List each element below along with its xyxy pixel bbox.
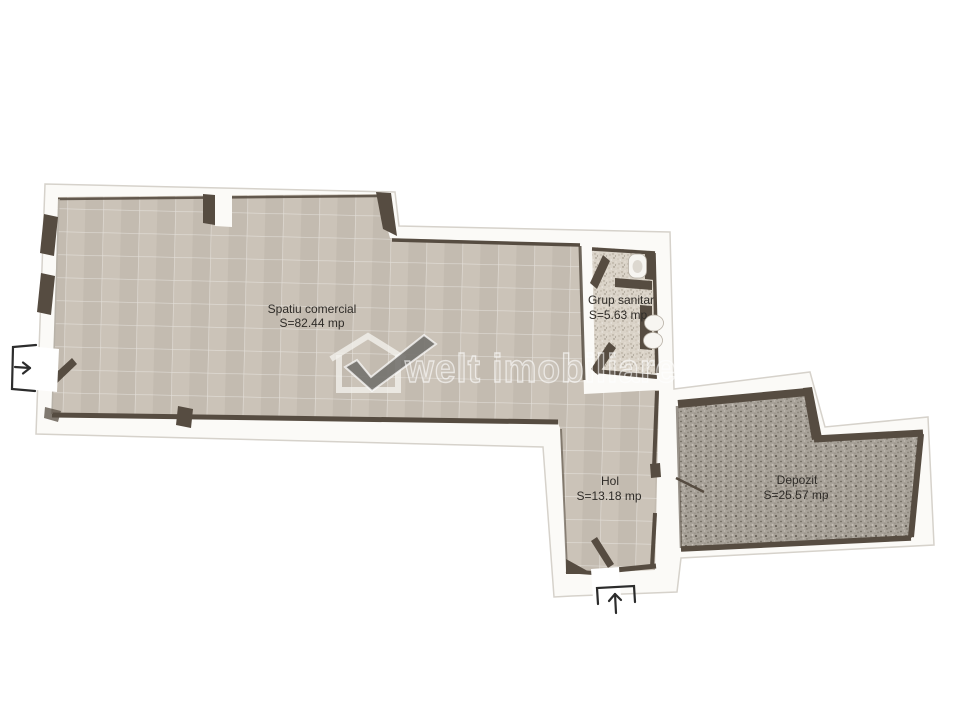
room-name-depozit: Depozit: [777, 473, 818, 487]
room-area-spatiu-comercial: S=82.44 mp: [279, 316, 344, 330]
room-area-hol: S=13.18 mp: [576, 489, 641, 503]
wall-stub-top-face: [203, 194, 215, 225]
toilet-bowl: [633, 260, 643, 273]
sink-basin-1-icon: [645, 315, 664, 331]
watermark-brand-text: welt imobiliare: [404, 347, 677, 391]
hol-doorway-jamb: [650, 463, 661, 478]
room-area-depozit: S=25.57 mp: [763, 488, 828, 502]
floor-plan-page: welt imobiliare Spatiu comercial S=82.44…: [0, 0, 965, 720]
wall-stub-top-white: [215, 194, 232, 227]
room-name-grup-sanitar: Grup sanitar: [588, 293, 654, 307]
room-area-grup-sanitar: S=5.63 mp: [589, 308, 648, 322]
wall-stub-bottom: [176, 406, 193, 428]
door-gap-left: [26, 346, 59, 392]
room-name-spatiu-comercial: Spatiu comercial: [268, 302, 357, 316]
floor-plan-canvas: welt imobiliare Spatiu comercial S=82.44…: [0, 0, 965, 720]
room-name-hol: Hol: [601, 474, 619, 488]
